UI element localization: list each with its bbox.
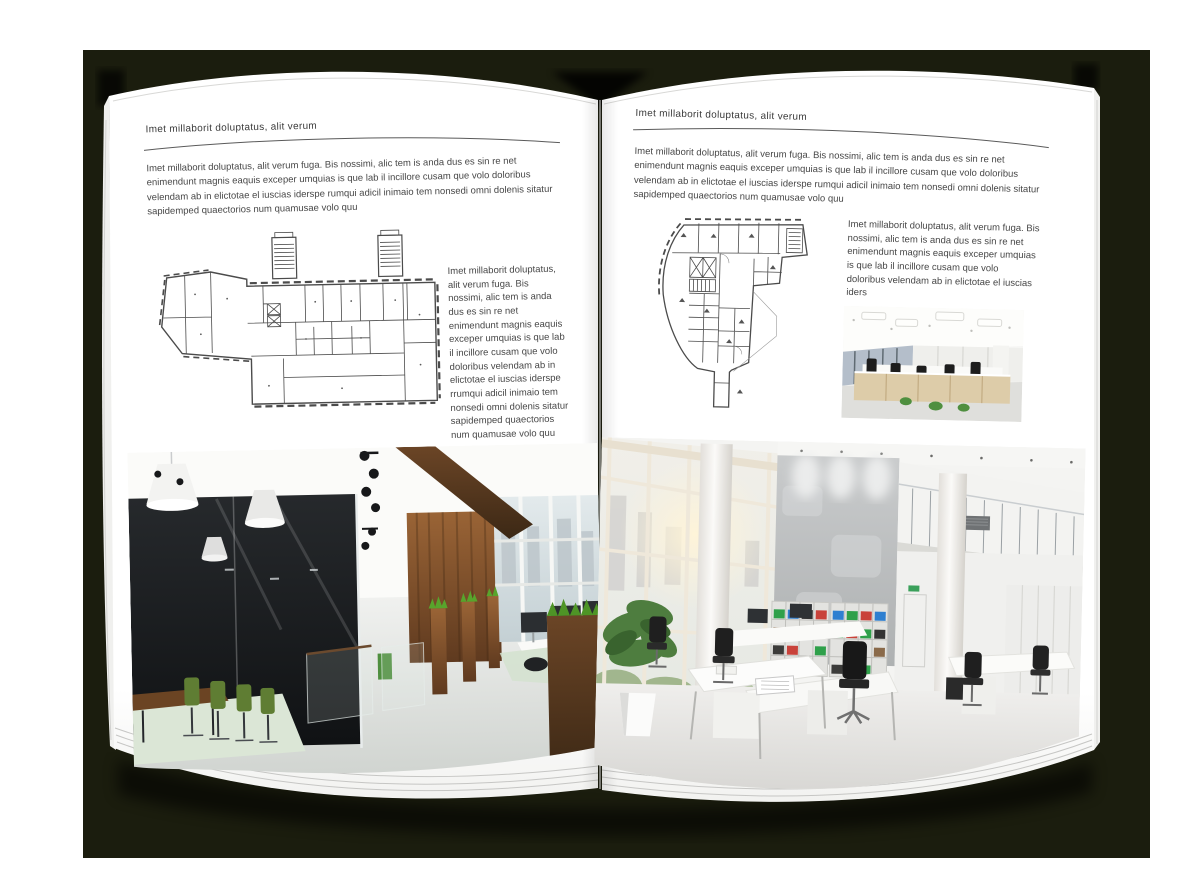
page-right-header: Imet millaborit doluptatus, alit verum xyxy=(635,108,807,123)
page-right-intro: Imet millaborit doluptatus, alit verum f… xyxy=(633,145,1048,212)
wall-wash-lights xyxy=(791,454,891,500)
floor-plan-right xyxy=(646,211,838,420)
photo-right-small-office xyxy=(841,306,1024,422)
page-left-content: Imet millaborit doluptatus, alit verum I… xyxy=(102,55,610,813)
page-left-intro: Imet millaborit doluptatus, alit verum f… xyxy=(146,154,559,220)
page-left-header: Imet millaborit doluptatus, alit verum xyxy=(145,121,317,136)
page-right-content: Imet millaborit doluptatus, alit verum I… xyxy=(591,52,1109,816)
exit-sign xyxy=(908,585,919,591)
plan-room-marks xyxy=(677,232,777,394)
photo-left-office xyxy=(127,443,604,787)
floor-plan-left xyxy=(154,224,445,419)
waste-bin xyxy=(946,677,964,699)
page-left-side-text: Imet millaborit doluptatus, alit verum f… xyxy=(447,263,569,443)
magazine-mockup-stage: Imet millaborit doluptatus, alit verum I… xyxy=(0,0,1200,891)
photo-right-atrium xyxy=(594,437,1086,798)
page-right-side-text: Imet millaborit doluptatus, alit verum f… xyxy=(846,218,1040,305)
